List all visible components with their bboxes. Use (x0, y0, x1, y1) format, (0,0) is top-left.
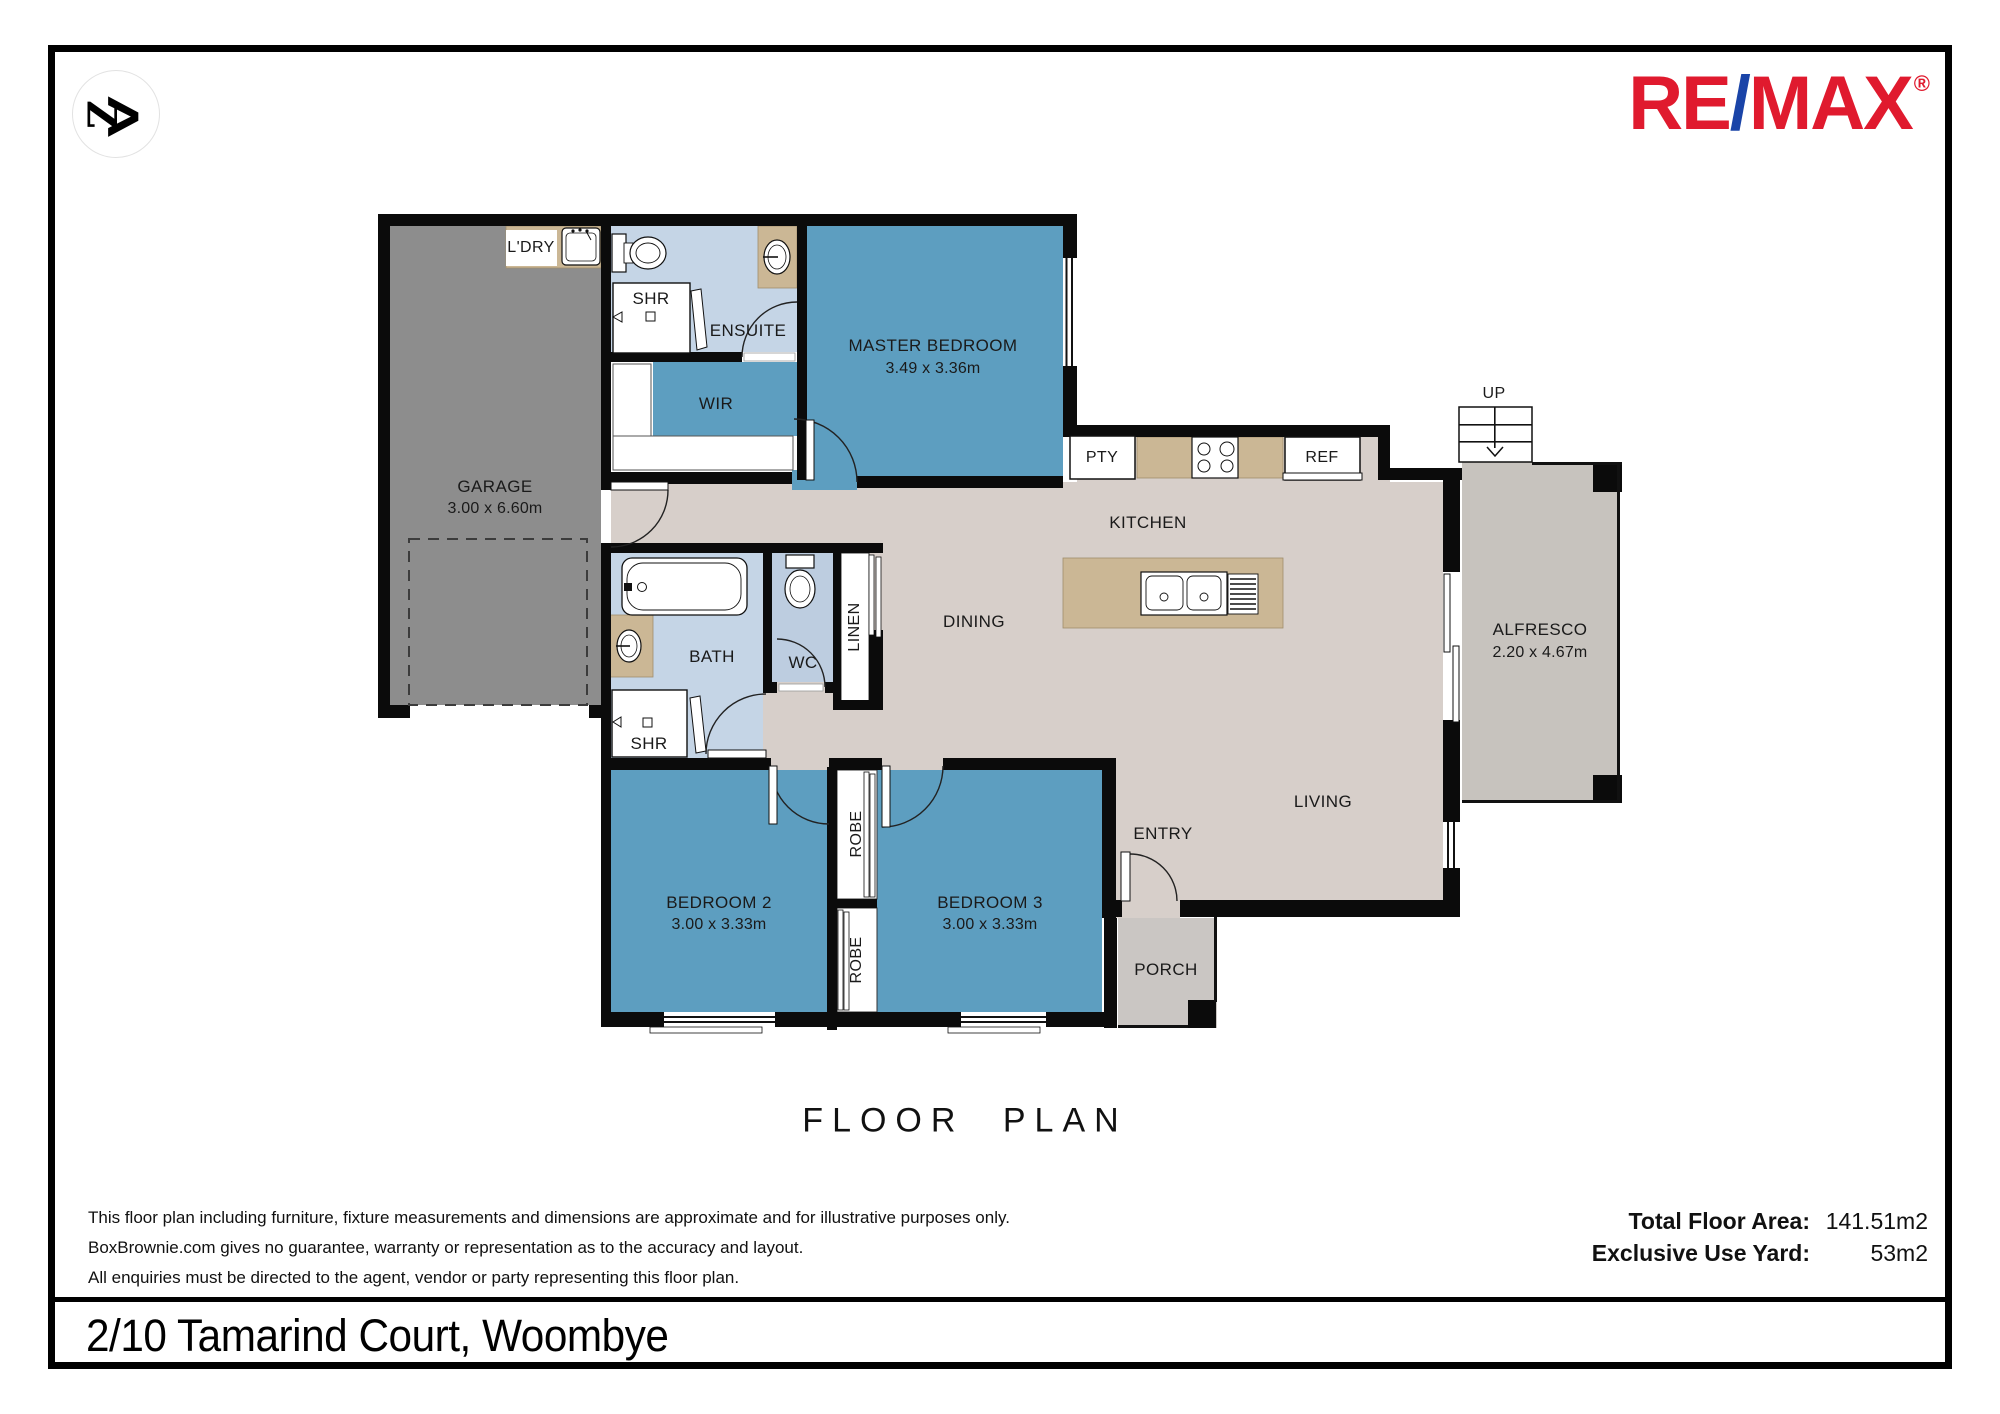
wc-toilet-icon (785, 555, 815, 608)
floor-plan-drawing (0, 0, 2000, 1414)
room-label-master-bedroom: MASTER BEDROOM (848, 336, 1017, 356)
room-label-ensuite: ENSUITE (710, 321, 786, 341)
floor-plan-page: Z > RE/MAX® (0, 0, 2000, 1414)
room-label-linen: LINEN (846, 602, 864, 651)
total-floor-area-row: Total Floor Area: 141.51m2 (1592, 1205, 1928, 1237)
room-dims-alfresco: 2.20 x 4.67m (1493, 644, 1588, 662)
room-label-robe-upper: ROBE (848, 811, 866, 858)
address-separator (48, 1297, 1952, 1302)
room-label-bedroom3: BEDROOM 3 (937, 893, 1043, 913)
ensuite-basin-icon (763, 240, 790, 274)
exclusive-yard-row: Exclusive Use Yard: 53m2 (1592, 1237, 1928, 1269)
room-label-dining: DINING (943, 612, 1005, 632)
label-stairs-up: UP (1482, 385, 1505, 403)
room-label-porch: PORCH (1134, 960, 1197, 980)
room-label-entry: ENTRY (1133, 824, 1192, 844)
room-label-living: LIVING (1294, 792, 1352, 812)
room-label-pantry: PTY (1086, 449, 1118, 467)
room-label-shower-bath: SHR (630, 734, 667, 754)
disclaimer-line-2: BoxBrownie.com gives no guarantee, warra… (88, 1233, 1010, 1263)
laundry-sink-icon (562, 228, 600, 265)
disclaimer-text: This floor plan including furniture, fix… (88, 1203, 1010, 1293)
page-title: FLOOR PLAN (802, 1102, 1127, 1141)
fridge-base (1283, 473, 1362, 480)
room-label-alfresco: ALFRESCO (1493, 620, 1588, 640)
room-dims-bedroom2: 3.00 x 3.33m (672, 916, 767, 934)
disclaimer-line-3: All enquiries must be directed to the ag… (88, 1263, 1010, 1293)
area-totals: Total Floor Area: 141.51m2 Exclusive Use… (1592, 1205, 1928, 1269)
bath-basin-icon (616, 630, 641, 662)
room-label-shower-ensuite: SHR (632, 289, 669, 309)
room-dims-master-bedroom: 3.49 x 3.36m (886, 360, 981, 378)
room-label-laundry: L'DRY (507, 239, 554, 257)
stairs-up (1459, 407, 1532, 462)
bathtub-icon (622, 558, 747, 615)
exclusive-yard-value: 53m2 (1810, 1237, 1928, 1269)
total-floor-area-label: Total Floor Area: (1629, 1205, 1810, 1237)
room-label-kitchen: KITCHEN (1109, 513, 1186, 533)
room-label-garage: GARAGE (457, 477, 532, 497)
stove-icon (1192, 437, 1238, 478)
room-label-wir: WIR (699, 394, 733, 414)
room-label-bath: BATH (689, 647, 735, 667)
room-label-fridge: REF (1305, 449, 1338, 467)
island-sink-icon (1141, 572, 1258, 615)
property-address: 2/10 Tamarind Court, Woombye (86, 1310, 668, 1362)
room-dims-garage: 3.00 x 6.60m (448, 500, 543, 518)
disclaimer-line-1: This floor plan including furniture, fix… (88, 1203, 1010, 1233)
room-label-wc: WC (788, 653, 817, 673)
ensuite-toilet-icon (612, 234, 666, 272)
total-floor-area-value: 141.51m2 (1810, 1205, 1928, 1237)
room-label-robe-lower: ROBE (848, 937, 866, 984)
exclusive-yard-label: Exclusive Use Yard: (1592, 1237, 1810, 1269)
room-label-bedroom2: BEDROOM 2 (666, 893, 772, 913)
room-dims-bedroom3: 3.00 x 3.33m (943, 916, 1038, 934)
